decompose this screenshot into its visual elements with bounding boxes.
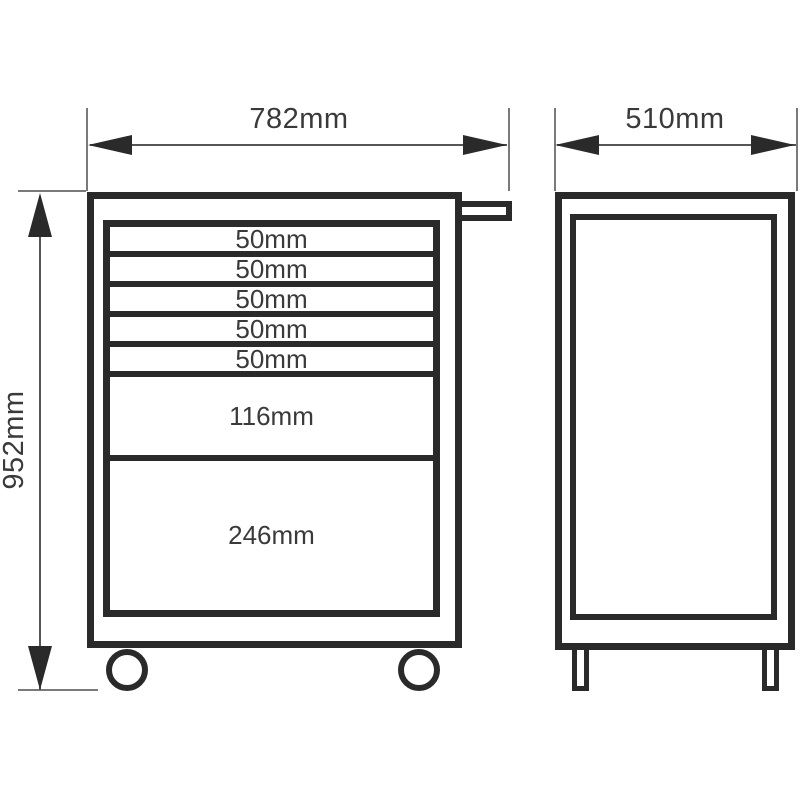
drawer-stack: 50mm 50mm 50mm 50mm 50mm 116mm 246mm (103, 220, 440, 617)
drawer-50mm-5: 50mm (110, 347, 433, 371)
extension-line (796, 108, 798, 191)
arrowhead-right-icon (751, 135, 795, 155)
side-panel-inset (570, 214, 777, 620)
drawer-label: 50mm (235, 227, 307, 251)
tool-cabinet-dimension-diagram: 782mm 510mm 952mm 50mm 50mm 50mm 50mm (0, 0, 800, 800)
drawer-50mm-1: 50mm (110, 227, 433, 251)
side-depth-dimension-label: 510mm (610, 103, 740, 136)
drawer-50mm-3: 50mm (110, 287, 433, 311)
drawer-label: 50mm (235, 347, 307, 371)
caster-wheel-left (106, 649, 148, 691)
extension-line (508, 108, 510, 191)
arrowhead-left-icon (88, 135, 132, 155)
arrowhead-down-icon (28, 646, 52, 690)
drawer-50mm-4: 50mm (110, 317, 433, 341)
caster-wheel-right (398, 649, 440, 691)
extension-line (554, 108, 556, 191)
extension-line (18, 190, 86, 192)
caster-stem-right (762, 648, 779, 691)
caster-stem-left (572, 648, 589, 691)
overall-height-dimension-label: 952mm (0, 375, 28, 505)
drawer-label: 246mm (228, 520, 315, 551)
drawer-label: 116mm (229, 401, 314, 432)
arrowhead-right-icon (463, 135, 507, 155)
extension-line (86, 108, 88, 191)
dimension-line (90, 144, 507, 146)
front-width-dimension-label: 782mm (234, 103, 364, 136)
drawer-label: 50mm (235, 257, 307, 281)
extension-line (18, 689, 98, 691)
drawer-50mm-2: 50mm (110, 257, 433, 281)
arrowhead-left-icon (555, 135, 599, 155)
dimension-line (39, 196, 41, 690)
arrowhead-up-icon (28, 193, 52, 237)
drawer-label: 50mm (235, 287, 307, 311)
drawer-246mm: 246mm (110, 461, 433, 610)
drawer-label: 50mm (235, 317, 307, 341)
drawer-116mm: 116mm (110, 377, 433, 455)
